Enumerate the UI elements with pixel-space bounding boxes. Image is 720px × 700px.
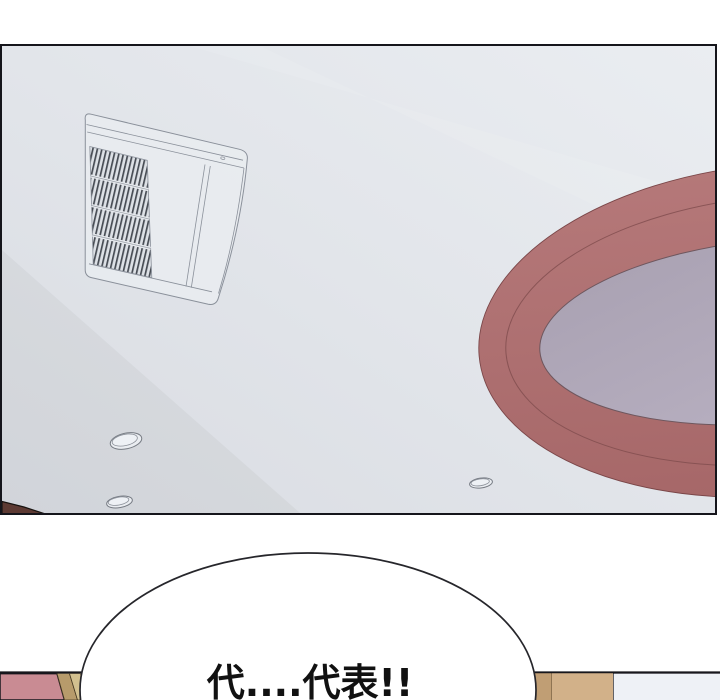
ceiling-panel xyxy=(0,44,717,515)
bottom-right-shapes xyxy=(524,672,720,700)
comic-page[interactable]: 代....代表!! xyxy=(0,0,720,700)
ceiling-art xyxy=(2,46,715,513)
bottom-left-shapes xyxy=(0,672,89,700)
bottom-scene: 代....代表!! xyxy=(0,515,720,700)
speech-bubble-text: 代....代表!! xyxy=(207,661,413,700)
